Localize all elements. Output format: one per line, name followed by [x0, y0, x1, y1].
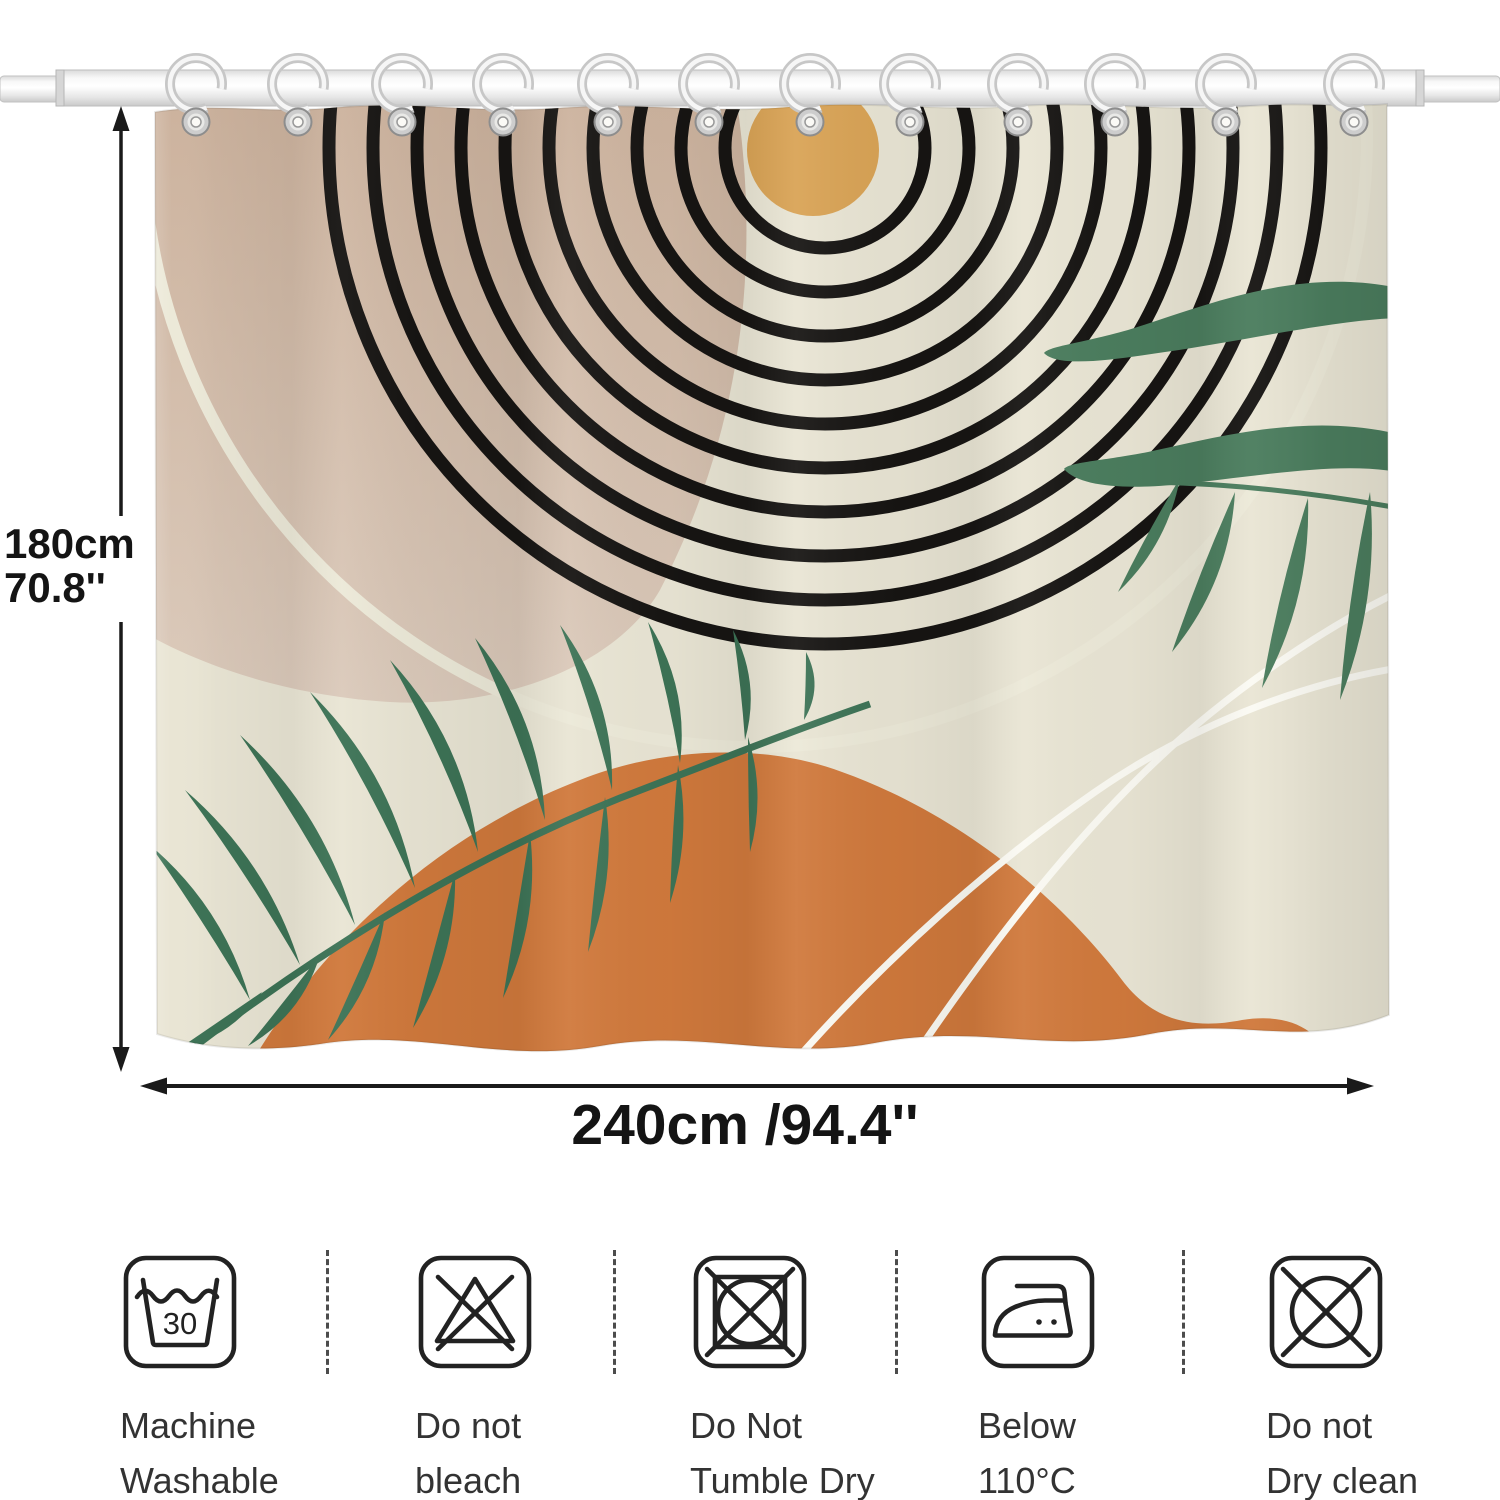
care-item-no-dry-clean: Do not Dry clean — [1266, 1252, 1496, 1500]
care-label: Machine Washable — [120, 1398, 350, 1500]
shower-curtain — [140, 0, 1402, 1080]
fabric-folds-overlay — [140, 88, 1402, 1080]
product-figure: 180cm 70.8'' 240cm /94.4'' 30 Machine Wa… — [0, 0, 1500, 1500]
care-label: Below 110°C — [978, 1398, 1208, 1500]
width-dimension-label: 240cm /94.4'' — [395, 1092, 1095, 1158]
care-item-no-bleach: Do not bleach — [415, 1252, 645, 1500]
care-label: Do Not Tumble Dry — [690, 1398, 920, 1500]
care-item-iron-low: Below 110°C — [978, 1252, 1208, 1500]
care-item-no-tumble-dry: Do Not Tumble Dry — [690, 1252, 920, 1500]
iron-below-110-icon — [978, 1252, 1098, 1372]
do-not-bleach-icon — [415, 1252, 535, 1372]
dashed-divider — [613, 1250, 616, 1374]
curtain-artwork — [140, 0, 1402, 1080]
care-label: Do not Dry clean — [1266, 1398, 1496, 1500]
height-in: 70.8'' — [4, 566, 135, 610]
care-label: Do not bleach — [415, 1398, 645, 1500]
do-not-dry-clean-icon — [1266, 1252, 1386, 1372]
rod-joint-right — [1416, 70, 1424, 106]
wash-temp-value: 30 — [163, 1306, 197, 1341]
care-item-machine-wash: 30 Machine Washable — [120, 1252, 350, 1500]
dashed-divider — [1182, 1250, 1185, 1374]
height-cm: 180cm — [4, 522, 135, 566]
dashed-divider — [326, 1250, 329, 1374]
do-not-tumble-dry-icon — [690, 1252, 810, 1372]
dashed-divider — [895, 1250, 898, 1374]
rod-joint-left — [56, 70, 64, 106]
height-dimension-label: 180cm 70.8'' — [4, 522, 135, 610]
machine-wash-30-icon: 30 — [120, 1252, 240, 1372]
